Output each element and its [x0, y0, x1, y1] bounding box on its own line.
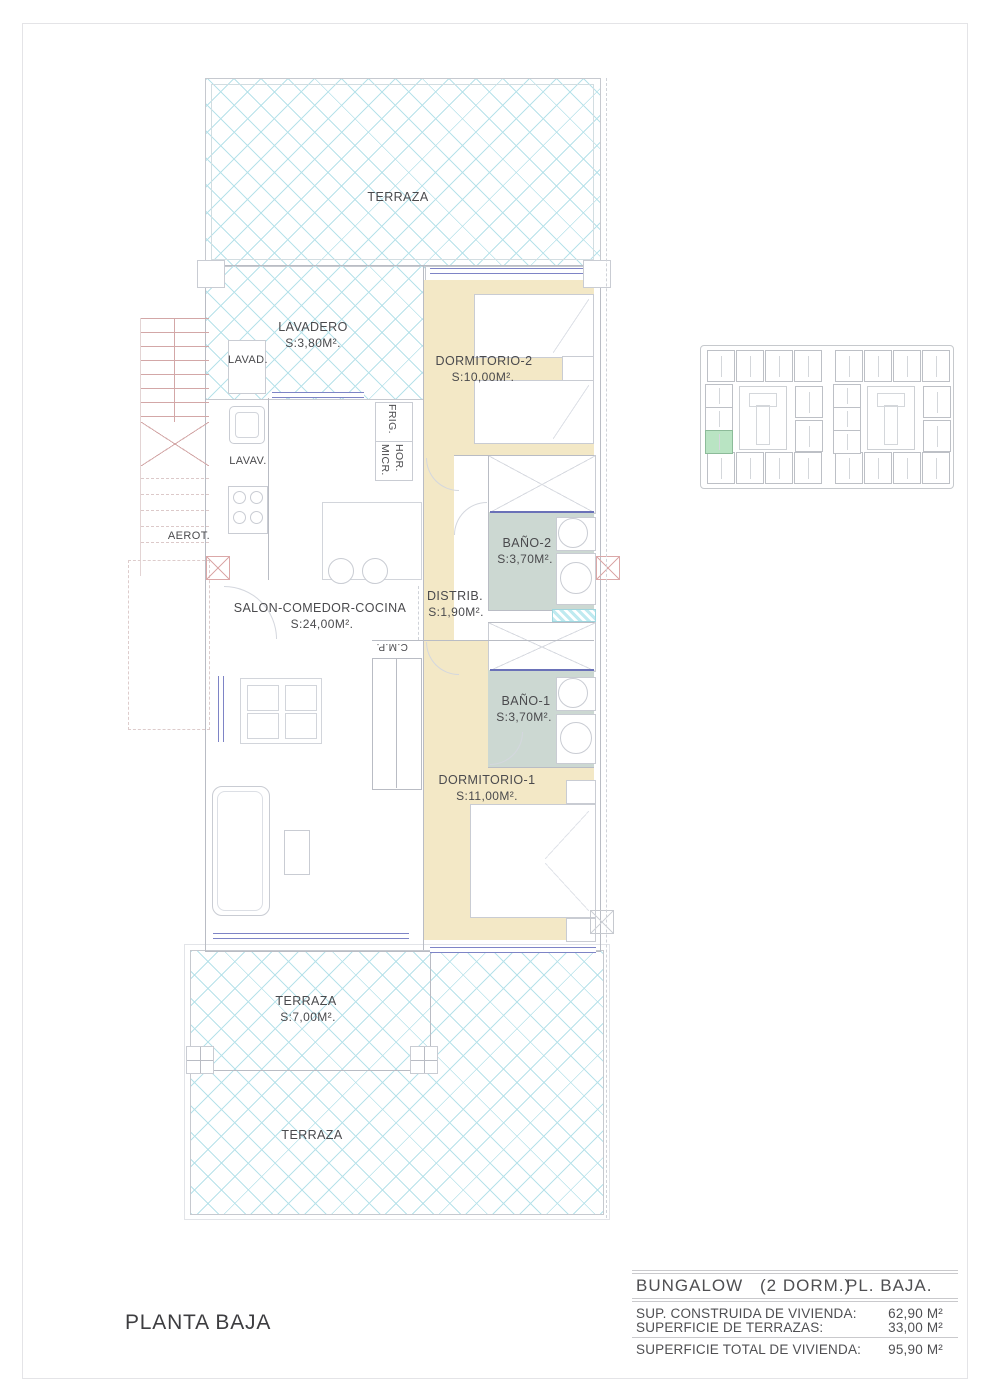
key-plan-unit: [794, 452, 822, 484]
key-plan-unit: [923, 420, 951, 452]
bed-pillow-mark: [553, 299, 589, 353]
salon-window-bottom: [213, 933, 409, 939]
stair-tread: [141, 346, 209, 347]
stair-tread: [141, 360, 209, 361]
bedroom2-bed-b: [474, 380, 594, 444]
key-plan-unit: [707, 452, 735, 484]
stair-tread: [141, 374, 209, 375]
hob-burner: [233, 491, 246, 504]
title-block-rule: [632, 1337, 958, 1338]
wall-salon-bedroom1: [423, 640, 424, 950]
title-block-rule: [632, 1270, 958, 1274]
dining-chair: [285, 713, 317, 739]
washing-machine: [228, 340, 266, 394]
key-plan-unit: [864, 350, 892, 382]
key-plan-unit: [705, 384, 733, 408]
bedroom2-window-top: [430, 268, 590, 274]
bath1-area-label: S:3,70M².: [496, 710, 552, 724]
terrace-mid-area-label: S:7,00M².: [280, 1010, 336, 1024]
title-block: BUNGALOW (2 DORM.) PL. BAJA. SUP. CONSTR…: [632, 1262, 958, 1357]
key-plan-unit: [922, 350, 950, 382]
coffee-table: [284, 830, 310, 875]
key-plan-pool: [867, 386, 915, 450]
aerothermal-dashed-outline: [128, 560, 210, 730]
key-plan-unit: [922, 452, 950, 484]
bath1-toilet-bowl: [558, 678, 588, 708]
terrace-area-value: 33,00 M²: [888, 1320, 943, 1335]
hob-burner: [233, 511, 246, 524]
dining-chair: [247, 713, 279, 739]
oven-label: HOR.: [393, 444, 405, 472]
terrace-bottom-label: TERRAZA: [281, 1128, 342, 1142]
dining-table: [240, 678, 322, 744]
terrace-area-label: SUPERFICIE DE TERRAZAS:: [636, 1320, 823, 1335]
stair-service-box: [206, 556, 230, 580]
sofa-seat-line: [217, 791, 263, 911]
wall-bath1-bottom: [488, 767, 594, 768]
key-plan: [700, 345, 954, 489]
key-plan-unit: [705, 407, 733, 431]
key-plan-unit-highlighted: [705, 430, 733, 454]
livingroom-area-label: S:24,00M².: [291, 617, 354, 631]
kitchen-sink-basin: [235, 412, 259, 438]
floor-plan-sheet: TERRAZA LAVADERO S:3,80M². LAVAD. LAVAV.…: [0, 0, 989, 1400]
dining-chair: [285, 685, 317, 711]
bedroom1-label: DORMITORIO-1: [439, 773, 536, 787]
terrace-top-label: TERRAZA: [367, 190, 428, 204]
key-plan-unit: [833, 384, 861, 408]
service-box: [590, 910, 614, 934]
stair-tread-dashed: [141, 542, 209, 543]
column: [197, 260, 225, 288]
stair-tread: [141, 388, 209, 389]
aerothermal-label: AEROT.: [168, 530, 210, 542]
terrace-column: [186, 1046, 214, 1074]
dining-chair: [247, 685, 279, 711]
wall-bedroom2-bottom: [454, 455, 594, 456]
bath1-basin: [560, 722, 592, 754]
hob-burner: [250, 491, 263, 504]
terrace-top-inner-line: [211, 84, 594, 260]
bath2-basin: [560, 562, 592, 594]
livingroom-label: SALON-COMEDOR-COCINA: [234, 601, 407, 615]
bath2-label: BAÑO-2: [503, 536, 552, 550]
key-plan-unit: [794, 350, 822, 382]
kitchen-counter-edge: [268, 398, 269, 580]
key-plan-unit: [864, 452, 892, 484]
key-plan-unit: [765, 350, 793, 382]
key-plan-unit: [833, 430, 861, 454]
key-plan-unit: [835, 452, 863, 484]
stair-tread: [141, 318, 209, 319]
bedroom1-nightstand: [566, 780, 596, 804]
kitchen-window: [272, 392, 364, 398]
key-plan-unit: [707, 350, 735, 382]
salon-distrib-opening: [418, 586, 419, 640]
property-dashed-line: [606, 78, 607, 1218]
washer-label: LAVAD.: [228, 354, 268, 366]
terrace-mid-label: TERRAZA: [275, 994, 336, 1008]
stair-tread: [141, 332, 209, 333]
key-plan-unit: [893, 350, 921, 382]
terrace-divider-wall-h: [190, 1070, 430, 1071]
sofa: [212, 786, 270, 916]
built-area-value: 62,90 M²: [888, 1306, 943, 1321]
key-plan-unit: [795, 386, 823, 418]
key-plan-unit: [765, 452, 793, 484]
key-plan-unit: [835, 350, 863, 382]
terrace-mid: [190, 950, 604, 1215]
dishwasher-label: LAVAV.: [229, 455, 266, 467]
hob-burner: [250, 511, 263, 524]
key-plan-unit: [893, 452, 921, 484]
fridge-label: FRIG.: [386, 404, 398, 434]
bedroom1-bed: [470, 804, 596, 918]
ac-unit-box: [596, 556, 620, 580]
kitchen-stool: [328, 558, 354, 584]
bedroom2-area-label: S:10,00M².: [452, 370, 515, 384]
stair-landing-mark: [141, 422, 209, 466]
bath2-area-label: S:3,70M².: [497, 552, 553, 566]
bath2-toilet-bowl: [558, 518, 588, 548]
bedroom2-label: DORMITORIO-2: [436, 354, 533, 368]
title-block-rule: [632, 1298, 958, 1302]
closet-label: C.M.P.: [376, 641, 408, 652]
wall-bath2-left: [488, 455, 489, 610]
key-plan-unit: [923, 386, 951, 418]
key-plan-unit: [833, 407, 861, 431]
key-plan-unit: [795, 420, 823, 452]
bathrooms-window: [552, 609, 596, 622]
laundry-area-label: S:3,80M².: [285, 336, 341, 350]
hall-label: DISTRIB.: [427, 589, 483, 603]
key-plan-pool: [739, 386, 787, 450]
closet-cmp: [372, 658, 422, 790]
hall-area-label: S:1,90M².: [428, 605, 484, 619]
wall-bath1-top: [488, 622, 594, 623]
wall-kitchen-hall: [423, 265, 424, 640]
built-area-label: SUP. CONSTRUIDA DE VIVIENDA:: [636, 1306, 857, 1321]
title-block-variant: (2 DORM.): [760, 1276, 851, 1296]
bedroom1-window-bottom: [430, 947, 596, 953]
total-area-label: SUPERFICIE TOTAL DE VIVIENDA:: [636, 1342, 861, 1357]
stair-tread: [141, 416, 209, 417]
terrace-column: [410, 1046, 438, 1074]
key-plan-unit: [736, 350, 764, 382]
laundry-label: LAVADERO: [278, 320, 347, 334]
title-block-product: BUNGALOW: [636, 1276, 743, 1296]
bedroom2-nightstand: [562, 356, 594, 381]
bedroom2-bed-a: [474, 294, 594, 358]
microwave-label: MICR.: [379, 444, 391, 476]
bath1-label: BAÑO-1: [502, 694, 551, 708]
bed-pillow-mark: [553, 385, 589, 439]
bed-pillow-mark: [545, 811, 589, 859]
total-area-value: 95,90 M²: [888, 1342, 943, 1357]
stair-tread-dashed: [141, 510, 209, 511]
salon-window-left: [218, 676, 224, 742]
stair-tread-dashed: [141, 478, 209, 479]
stair-tread: [141, 402, 209, 403]
stair-rail: [174, 318, 175, 422]
key-plan-unit: [736, 452, 764, 484]
kitchen-stool: [362, 558, 388, 584]
stair-tread-dashed: [141, 494, 209, 495]
bedroom1-area-label: S:11,00M².: [456, 789, 518, 803]
closet-divider: [396, 658, 397, 788]
plan-title: PLANTA BAJA: [125, 1311, 271, 1335]
title-block-floor: PL. BAJA.: [846, 1276, 932, 1296]
bed-pillow-mark: [545, 863, 589, 911]
stair-tread-dashed: [141, 526, 209, 527]
